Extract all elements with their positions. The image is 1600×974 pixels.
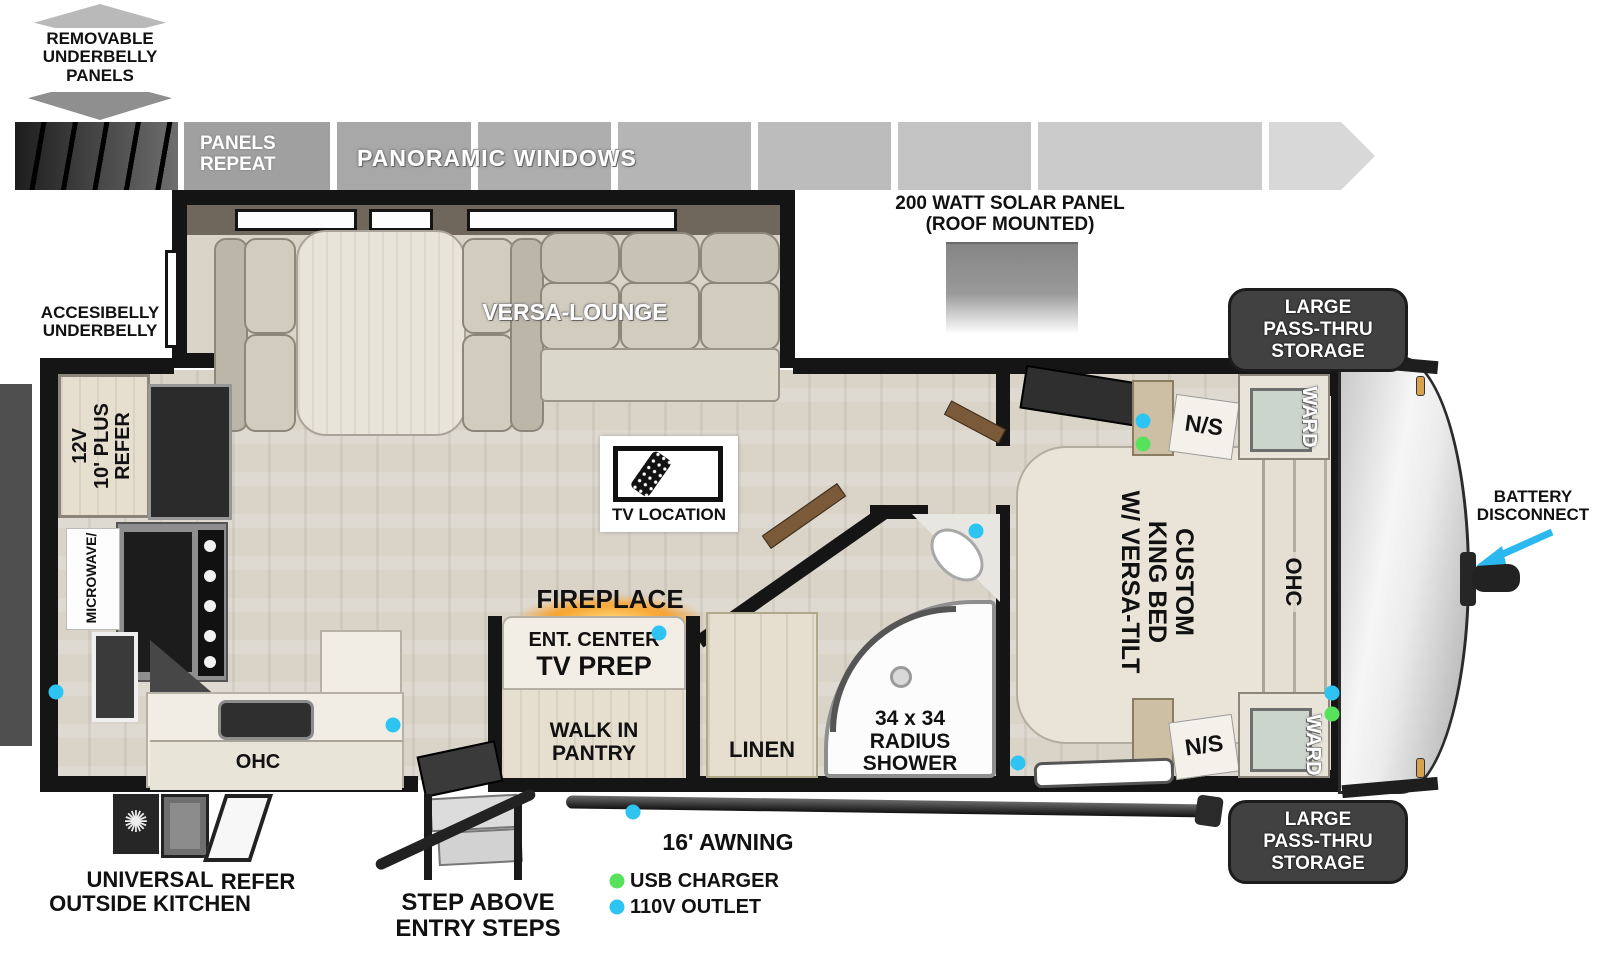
trailer-body: VERSA-LOUNGE 12V 10' PLUS REFER MICROWAV… [0,0,1600,974]
outside-refer-door [161,794,209,858]
110v-outlet-dot [1011,756,1026,771]
wardrobe-label: WARD [1301,703,1323,787]
bedroom-floor-mat [1034,758,1175,789]
battery-disconnect-label: BATTERY DISCONNECT [1468,488,1598,525]
pass-thru-storage-badge: LARGE PASS-THRU STORAGE [1228,288,1408,372]
king-bed-label: CUSTOM KING BED W/ VERSA-TILT [1107,452,1197,712]
shower-label: 34 x 34 RADIUS SHOWER [824,708,996,776]
outside-kitchen-door-open [203,794,273,862]
slideout-window [235,209,357,231]
outside-kitchen-vent: ✺ [113,794,159,854]
kitchen-sink [218,700,314,740]
110v-outlet-dot [652,626,667,641]
tv-location-label: TV LOCATION [600,506,738,524]
usb-charger-legend-label: USB CHARGER [630,871,779,893]
110v-outlet-dot [49,685,64,700]
step-above-label: STEP ABOVE ENTRY STEPS [368,890,588,942]
tv-location-box: TV LOCATION [600,436,738,532]
110v-outlet-dot [969,524,984,539]
tv-prep-label: TV PREP [502,652,686,681]
battery-disconnect-arrow [1468,524,1560,572]
110v-outlet-dot [386,718,401,733]
dinette-table [296,230,466,436]
legend: USB CHARGER 110V OUTLET [606,868,866,924]
slideout-window [467,209,677,231]
pantry-label: WALK IN PANTRY [502,720,686,765]
fan-vent-icon: ✺ [123,806,148,839]
bottom-wall [498,776,1340,792]
tv-icon [613,446,723,502]
kitchen-ohc-label: OHC [218,752,298,774]
usb-charger-dot [1136,437,1151,452]
kitchen-window [92,632,138,722]
marker-light [1416,376,1425,396]
shower-drain [890,666,912,688]
step-rail [514,796,522,880]
110v-outlet-legend-label: 110V OUTLET [630,897,761,919]
usb-charger-legend-dot [610,874,625,889]
awning-bar [566,795,1218,817]
bedroom-ohc-label: OHC [1281,552,1305,612]
awning-label: 16' AWNING [628,830,828,855]
slideout-side-window [165,250,179,348]
front-cap [1338,356,1470,794]
dinette-bench [462,238,542,428]
wardrobe-label: WARD [1297,375,1319,459]
outside-refer-label: REFER [213,870,303,894]
110v-outlet-dot [626,805,641,820]
usb-charger-dot [1325,707,1340,722]
refer-label: 12V 10' PLUS REFER [70,371,136,521]
floorplan-diagram: REMOVABLE UNDERBELLY PANELS PANELS REPEA… [0,0,1600,974]
110v-outlet-dot [1136,414,1151,429]
pantry-wall [686,616,700,792]
marker-light [1416,758,1425,778]
pass-thru-storage-badge: LARGE PASS-THRU STORAGE [1228,800,1408,884]
awning-bracket [1194,794,1224,827]
110v-outlet-legend-dot [610,900,625,915]
110v-outlet-dot [1325,686,1340,701]
linen-label: LINEN [706,738,818,762]
refrigerator-unit [148,384,232,520]
microwave-label: MICROWAVE/ [84,523,100,633]
left-wall [40,358,58,792]
slideout-window [369,209,433,231]
fireplace-label: FIREPLACE [505,585,715,613]
versa-lounge-label: VERSA-LOUNGE [450,300,700,325]
